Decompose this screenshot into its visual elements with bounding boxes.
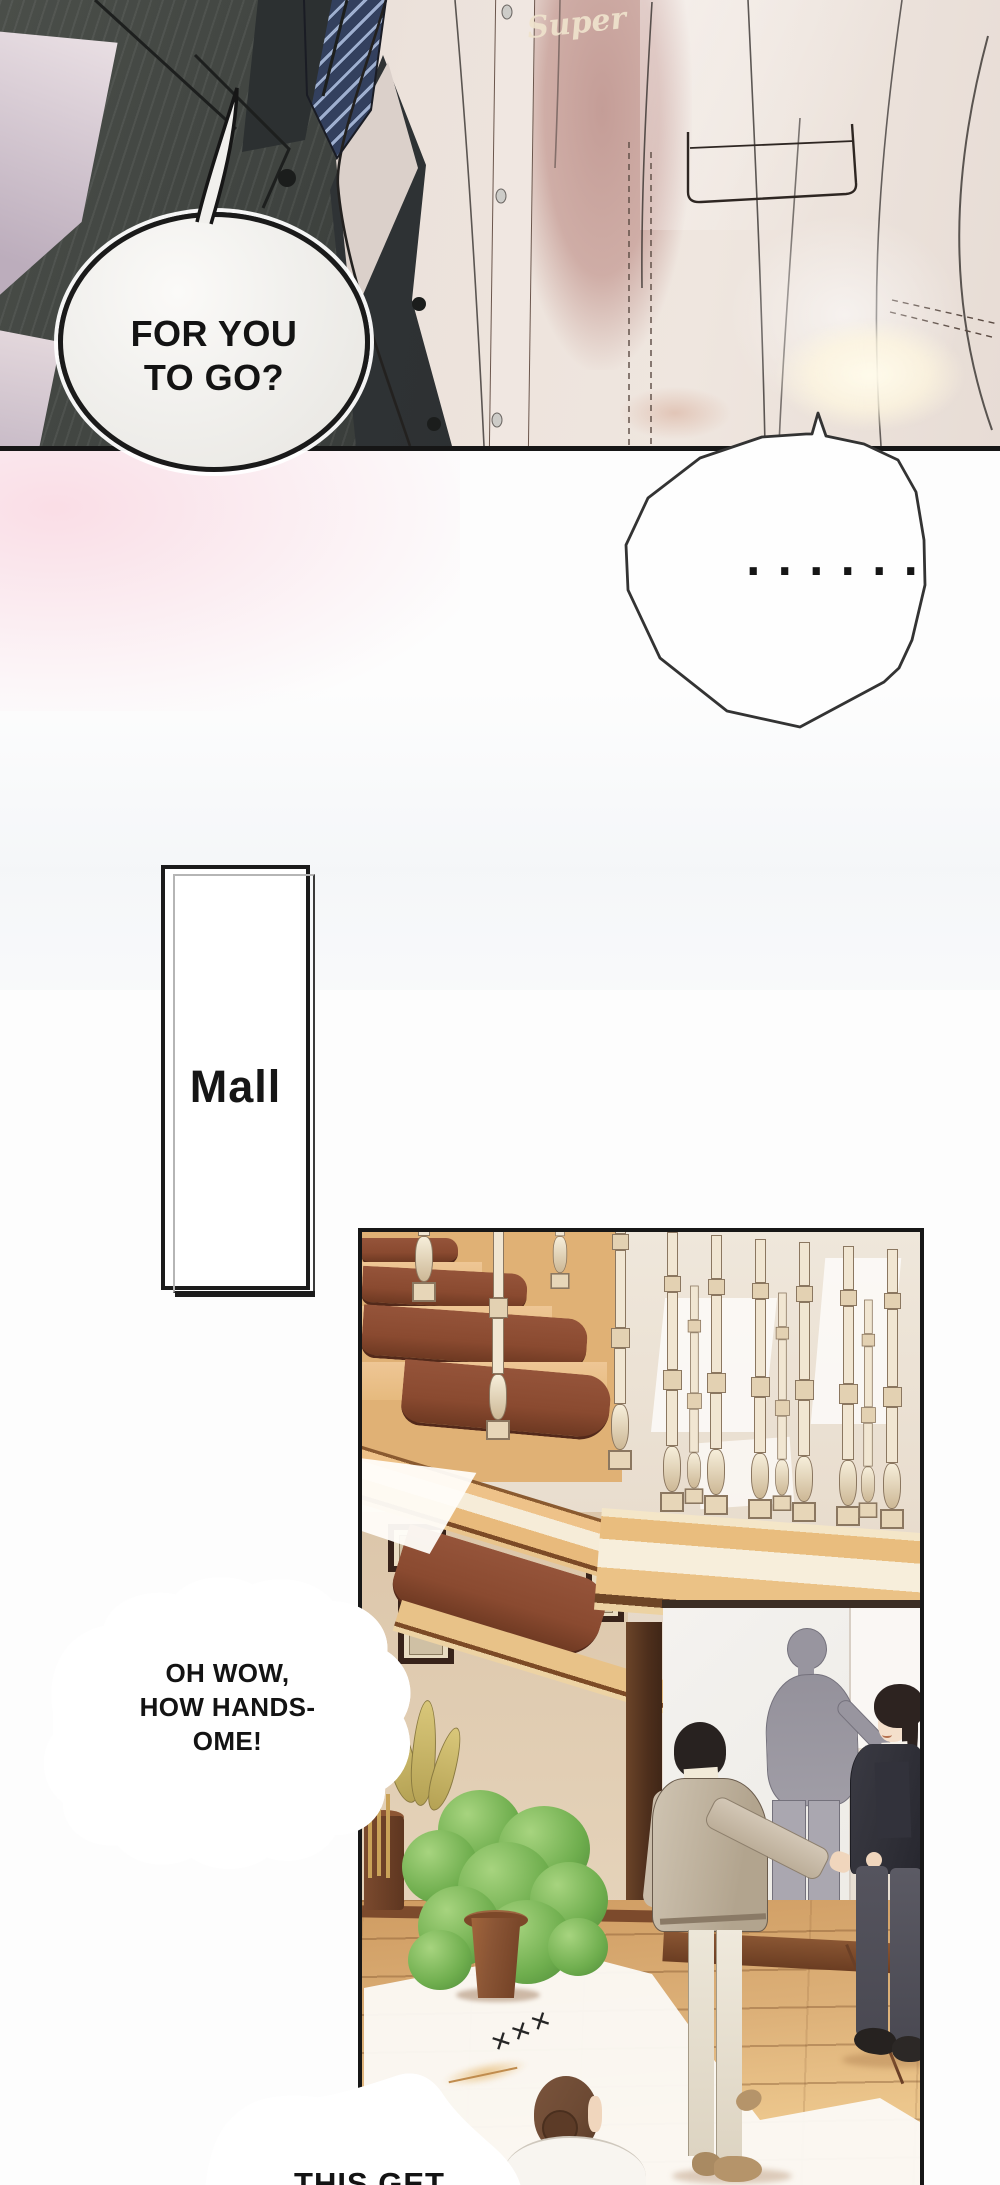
silence-dots: ...... [740, 544, 850, 578]
stair-tread [362, 1238, 458, 1265]
baluster-back [550, 1228, 571, 1289]
baluster-back [858, 1292, 878, 1518]
speech-text-oh-wow: OH WOW, HOW HANDS- OME! [85, 1656, 370, 1758]
baluster [411, 1228, 437, 1302]
bamboo-stick [368, 1792, 372, 1878]
mall-sign: Mall [161, 865, 310, 1290]
bamboo-stick [386, 1794, 390, 1878]
baluster-back [684, 1278, 704, 1504]
coat-man-leg [716, 1930, 742, 2160]
suit-man-smile [882, 1732, 892, 1738]
cool-gradient-gap [0, 690, 1000, 990]
bamboo-stick [377, 1788, 381, 1876]
baluster [879, 1239, 905, 1529]
pink-gradient-gap [0, 451, 460, 711]
baluster [485, 1228, 511, 1440]
baluster [747, 1229, 773, 1519]
silhouette-head [787, 1628, 827, 1670]
suit-man-shoe [892, 2036, 924, 2062]
baluster [703, 1228, 729, 1515]
coat-man-coat [652, 1778, 768, 1932]
baluster [659, 1228, 685, 1512]
coat-man-shoe [714, 2156, 762, 2182]
suit-man-vest [875, 1761, 912, 1838]
speech-line: OH WOW, [85, 1656, 370, 1690]
mall-sign-base-line [175, 1291, 315, 1297]
manga-page: Super Mall [0, 0, 1000, 2185]
speech-text-this-get: THIS GET [262, 2166, 477, 2185]
light-flare [742, 300, 998, 450]
speech-line: TO GO? [64, 356, 364, 400]
speech-line: HOW HANDS- [85, 1690, 370, 1724]
speech-line: OME! [85, 1724, 370, 1758]
baluster [607, 1228, 633, 1470]
silhouette-torso [764, 1672, 861, 1807]
suit-man-leg [856, 1866, 888, 2038]
panel-mall-interior: ✕✕✕ [358, 1228, 924, 2185]
woman-face-edge [588, 2096, 602, 2132]
mall-sign-label: Mall [165, 1061, 306, 1113]
baluster-back [772, 1285, 792, 1511]
suit-man-leg [890, 1868, 922, 2042]
speech-text-for-you-to-go: FOR YOU TO GO? [64, 312, 364, 400]
speech-line: FOR YOU [64, 312, 364, 356]
coat-man-leg [688, 1930, 714, 2156]
baluster [791, 1232, 817, 1522]
picture-rail-line [662, 1600, 920, 1608]
shirt-buttons [492, 5, 512, 427]
